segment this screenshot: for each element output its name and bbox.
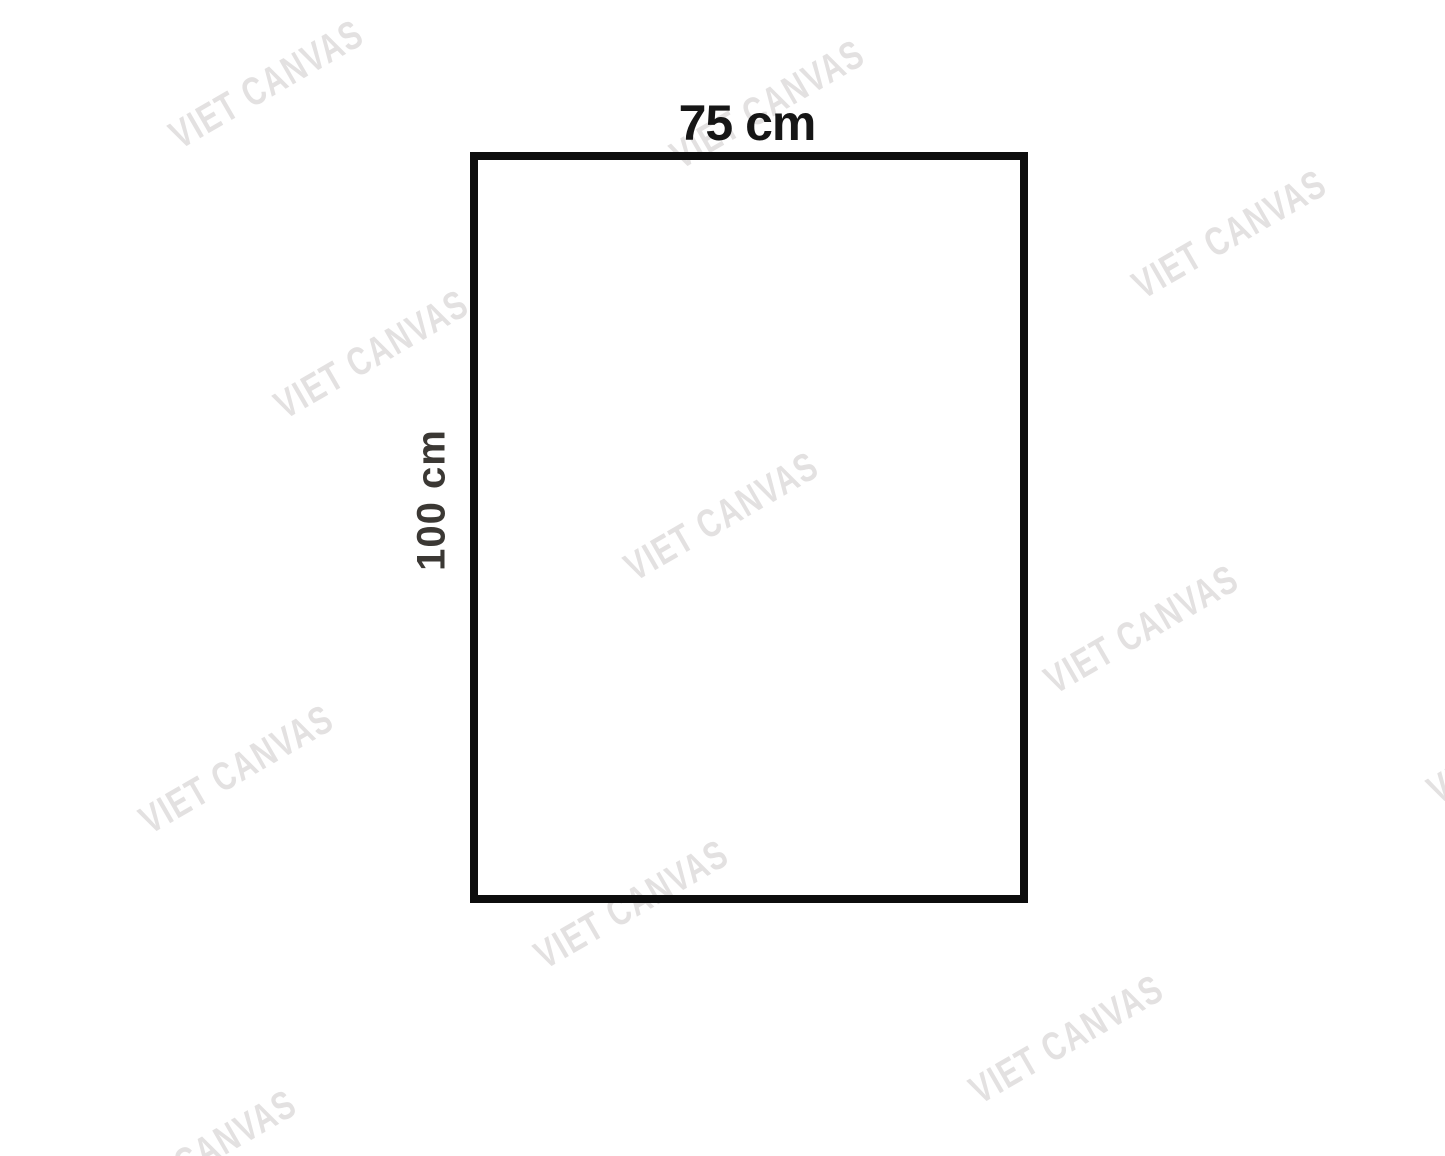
watermark-text: VIET CANVAS <box>1125 162 1335 309</box>
watermark-text: VIET CANVAS <box>267 282 477 429</box>
watermark-text: VIET CANVAS <box>162 12 372 159</box>
watermark-text: VIET CANVAS <box>95 1082 305 1156</box>
watermark-text: VIET CANVAS <box>962 967 1172 1114</box>
watermark-text: VIET CANVAS <box>1037 557 1247 704</box>
product-preview-image: VIET CANVASVIET CANVASVIET CANVASVIET CA… <box>0 0 1445 1156</box>
canvas-outline <box>470 152 1028 903</box>
watermark-text: VIET CANVAS <box>1420 667 1445 814</box>
width-dimension-label: 75 cm <box>679 94 816 152</box>
watermark-text: VIET CANVAS <box>1425 1137 1445 1156</box>
watermark-text: VIET CANVAS <box>132 697 342 844</box>
height-dimension-label: 100 cm <box>410 429 455 571</box>
